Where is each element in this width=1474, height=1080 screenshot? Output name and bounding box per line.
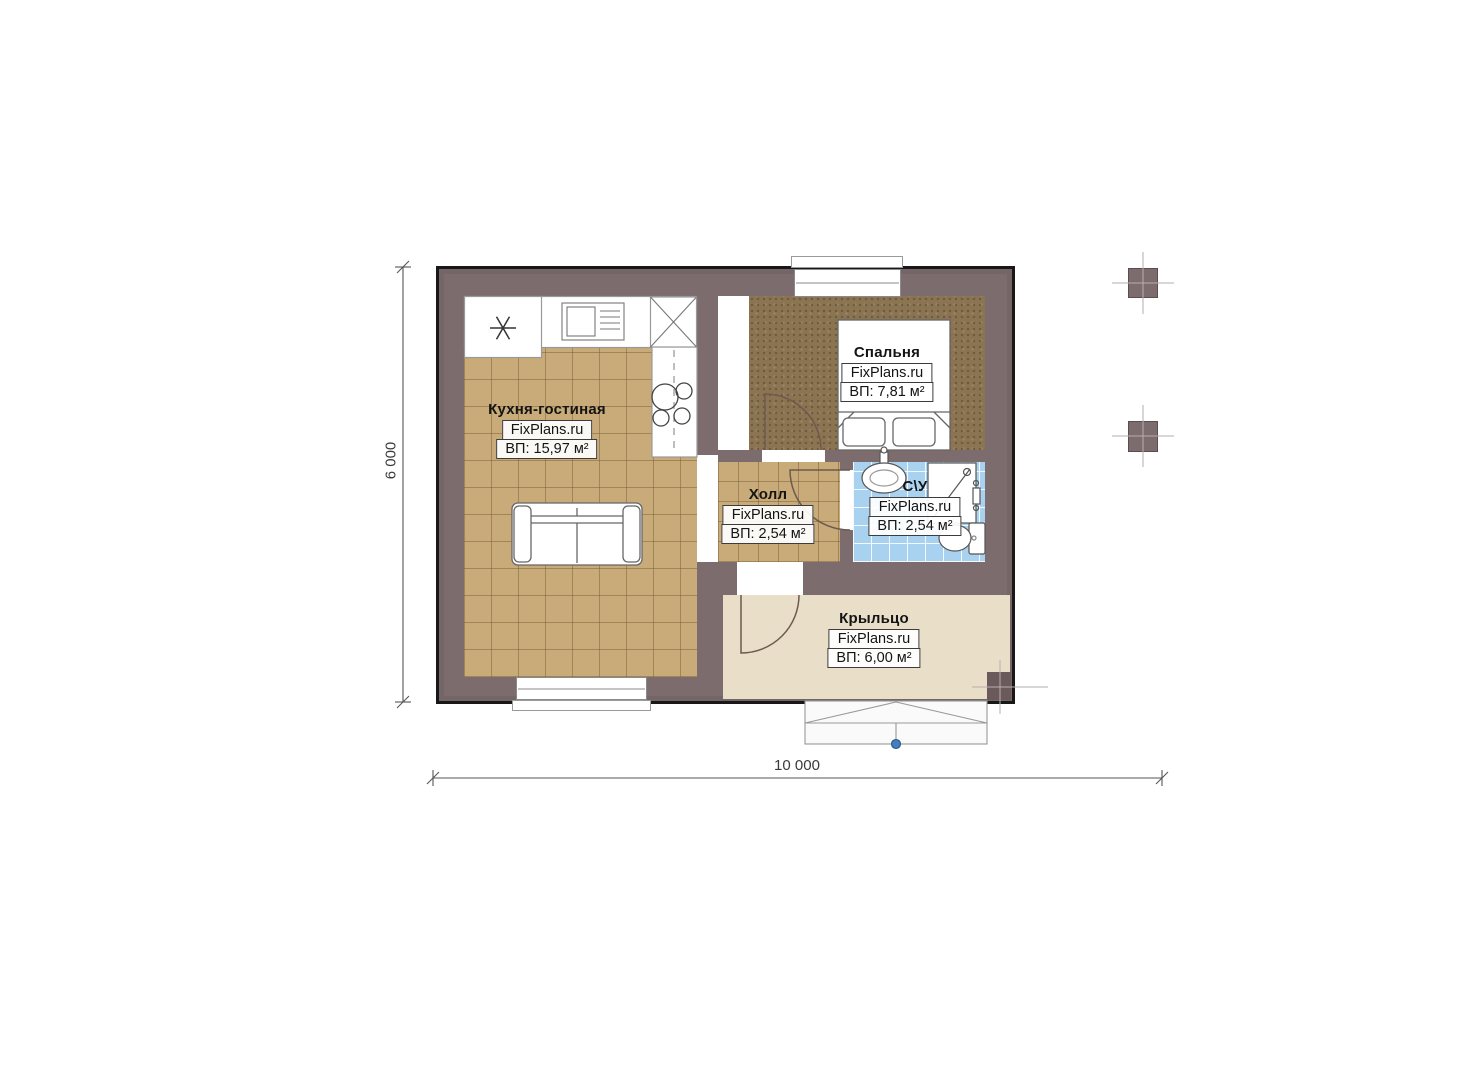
- brand-box: FixPlans.ru: [842, 363, 933, 383]
- living-room-window-sill: [512, 700, 651, 711]
- bathroom-door-opening: [840, 470, 853, 530]
- brand-box: FixPlans.ru: [870, 497, 961, 517]
- site-column-bottom: [1128, 421, 1158, 452]
- dimension-line-vertical: [395, 261, 411, 708]
- living-room-window: [516, 677, 647, 700]
- room-label-bathroom: С\У FixPlans.ru ВП: 2,54 м²: [868, 478, 961, 536]
- area-box: ВП: 6,00 м²: [827, 648, 920, 668]
- room-label-porch: Крыльцо FixPlans.ru ВП: 6,00 м²: [827, 610, 920, 668]
- bedroom-window: [794, 269, 901, 297]
- room-title: Крыльцо: [827, 610, 920, 627]
- room-title: С\У: [868, 478, 961, 495]
- kitchen-hall-passage: [697, 455, 718, 562]
- site-column-top: [1128, 268, 1158, 298]
- area-box: ВП: 2,54 м²: [721, 524, 814, 544]
- dimension-height-label: 6 000: [383, 438, 400, 484]
- room-title: Кухня-гостиная: [488, 401, 606, 418]
- bedroom-window-sill: [791, 256, 903, 268]
- entrance-marker: [892, 740, 901, 749]
- porch-corner-column: [987, 672, 1011, 700]
- entrance-steps: [805, 701, 987, 749]
- room-title: Спальня: [840, 344, 933, 361]
- brand-box: FixPlans.ru: [723, 505, 814, 525]
- bedroom-door-opening: [762, 450, 825, 462]
- bedroom-wardrobe-strip: [718, 296, 749, 450]
- brand-box: FixPlans.ru: [829, 629, 920, 649]
- room-label-bedroom: Спальня FixPlans.ru ВП: 7,81 м²: [840, 344, 933, 402]
- kitchen-living-floor: [464, 296, 697, 677]
- dimension-width-label: 10 000: [774, 757, 820, 774]
- entrance-door-opening: [737, 562, 803, 595]
- brand-box: FixPlans.ru: [502, 420, 593, 440]
- area-box: ВП: 15,97 м²: [496, 439, 597, 459]
- room-label-kitchen-living: Кухня-гостиная FixPlans.ru ВП: 15,97 м²: [488, 401, 606, 459]
- room-title: Холл: [721, 486, 814, 503]
- area-box: ВП: 7,81 м²: [840, 382, 933, 402]
- area-box: ВП: 2,54 м²: [868, 516, 961, 536]
- floor-plan-page: Кухня-гостиная FixPlans.ru ВП: 15,97 м² …: [0, 0, 1474, 1080]
- room-label-hall: Холл FixPlans.ru ВП: 2,54 м²: [721, 486, 814, 544]
